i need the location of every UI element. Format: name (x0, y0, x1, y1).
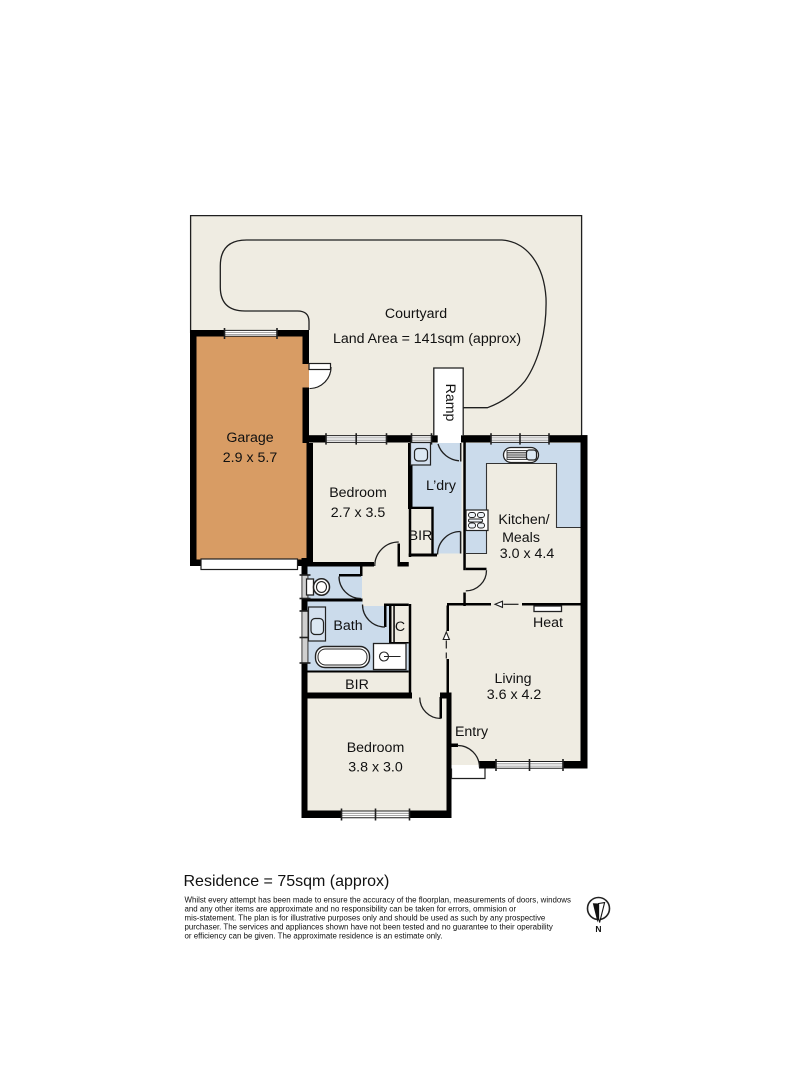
svg-text:N: N (595, 924, 601, 934)
svg-text:Bath: Bath (333, 618, 362, 634)
svg-text:L’dry: L’dry (426, 478, 457, 494)
svg-text:2.9 x 5.7: 2.9 x 5.7 (223, 450, 278, 466)
svg-text:3.8 x 3.0: 3.8 x 3.0 (348, 760, 403, 776)
svg-text:3.6 x 4.2: 3.6 x 4.2 (487, 687, 542, 703)
svg-text:Residence = 75sqm (approx): Residence = 75sqm (approx) (184, 873, 390, 890)
svg-text:Meals: Meals (502, 530, 540, 546)
svg-text:2.7 x 3.5: 2.7 x 3.5 (331, 505, 386, 521)
svg-text:Kitchen/: Kitchen/ (498, 512, 549, 528)
svg-text:Heat: Heat (533, 615, 563, 631)
svg-text:Garage: Garage (226, 430, 273, 446)
svg-text:Bedroom: Bedroom (329, 485, 387, 501)
svg-text:purchaser. The services and ap: purchaser. The services and appliances s… (185, 923, 553, 932)
svg-text:BIR: BIR (345, 677, 369, 693)
svg-text:C: C (395, 619, 405, 635)
svg-text:Bedroom: Bedroom (347, 740, 405, 756)
svg-text:Living: Living (494, 671, 531, 687)
svg-text:Courtyard: Courtyard (385, 306, 447, 322)
svg-text:or efficiency can be given. Th: or efficiency can be given. The approxim… (185, 931, 443, 940)
svg-text:Land Area = 141sqm (approx): Land Area = 141sqm (approx) (333, 331, 521, 347)
svg-text:Ramp: Ramp (442, 384, 458, 422)
svg-text:and any other items are approx: and any other items are approximate and … (185, 905, 517, 914)
svg-text:BIR: BIR (409, 528, 433, 544)
svg-text:3.0 x 4.4: 3.0 x 4.4 (500, 546, 555, 562)
svg-text:mis-statement. The plan is for: mis-statement. The plan is for illustrat… (185, 914, 546, 923)
svg-text:Entry: Entry (455, 724, 489, 740)
svg-text:Whilst every attempt has been: Whilst every attempt has been made to en… (185, 896, 571, 905)
